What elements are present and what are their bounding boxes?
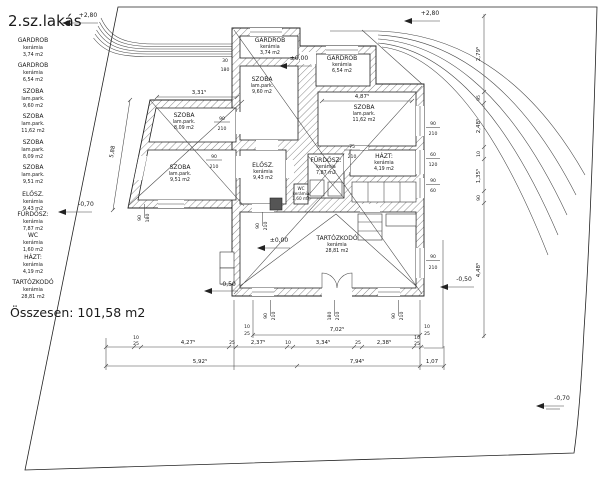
svg-text:75: 75 bbox=[349, 144, 355, 150]
svg-text:90: 90 bbox=[263, 313, 269, 319]
legend-item: WC kerámia 1,60 m2 bbox=[23, 232, 43, 253]
svg-text:kerámia: kerámia bbox=[327, 241, 346, 248]
svg-text:8,09 m2: 8,09 m2 bbox=[174, 125, 194, 131]
svg-text:90: 90 bbox=[430, 178, 436, 184]
label-szoba-951: SZOBA lam.park. 9,51 m2 bbox=[169, 164, 192, 183]
svg-text:90: 90 bbox=[391, 313, 397, 319]
svg-text:9,60 m2: 9,60 m2 bbox=[23, 103, 43, 109]
legend-item: SZOBA lam.park. 8,09 m2 bbox=[21, 139, 45, 160]
svg-text:95: 95 bbox=[476, 95, 482, 101]
dim-702: 7,02⁵ bbox=[330, 326, 344, 333]
svg-text:9,60 m2: 9,60 m2 bbox=[252, 89, 272, 95]
svg-text:GARDROB: GARDROB bbox=[18, 37, 49, 44]
svg-text:60: 60 bbox=[430, 188, 436, 194]
label-hazt: HÁZT: kerámia 4,19 m2 bbox=[374, 153, 394, 172]
svg-text:210: 210 bbox=[335, 312, 341, 321]
svg-text:25: 25 bbox=[424, 331, 430, 337]
dim-180: 180 bbox=[221, 67, 230, 73]
svg-text:kerámia: kerámia bbox=[260, 43, 279, 50]
dim-334: 3,34⁵ bbox=[316, 339, 330, 346]
svg-text:2,48⁵: 2,48⁵ bbox=[475, 119, 482, 133]
svg-text:3,74 m2: 3,74 m2 bbox=[260, 50, 280, 56]
elevation-minus070-bottom-right: -0,70 bbox=[536, 395, 570, 409]
svg-text:210: 210 bbox=[429, 265, 438, 271]
svg-text:6,54 m2: 6,54 m2 bbox=[23, 77, 43, 83]
svg-text:7,87 m2: 7,87 m2 bbox=[316, 170, 336, 176]
svg-text:SZOBA: SZOBA bbox=[170, 164, 192, 171]
svg-text:kerámia: kerámia bbox=[23, 286, 43, 293]
svg-text:kerámia: kerámia bbox=[23, 198, 43, 205]
svg-text:ELŐSZ.: ELŐSZ. bbox=[252, 162, 274, 169]
svg-text:HÁZT:: HÁZT: bbox=[24, 254, 42, 261]
svg-text:kerámia: kerámia bbox=[23, 69, 43, 76]
svg-text:10: 10 bbox=[414, 335, 420, 341]
legend-item: GARDROB kerámia 6,54 m2 bbox=[18, 62, 49, 83]
svg-text:HÁZT:: HÁZT: bbox=[375, 153, 393, 160]
svg-text:kerámia: kerámia bbox=[316, 163, 335, 170]
svg-text:8,09 m2: 8,09 m2 bbox=[23, 154, 43, 160]
svg-text:25: 25 bbox=[355, 340, 361, 346]
label-szoba-960: SZOBA lam.park. 9,60 m2 bbox=[251, 76, 274, 95]
svg-text:lam.park.: lam.park. bbox=[169, 171, 192, 177]
svg-text:10: 10 bbox=[424, 324, 430, 330]
svg-text:3,74 m2: 3,74 m2 bbox=[23, 52, 43, 58]
svg-text:lam.park.: lam.park. bbox=[21, 147, 45, 153]
svg-text:SZOBA: SZOBA bbox=[174, 112, 196, 119]
svg-text:WC: WC bbox=[28, 232, 38, 239]
svg-text:kerámia: kerámia bbox=[23, 261, 43, 268]
svg-text:120: 120 bbox=[429, 162, 438, 168]
svg-text:+2,80: +2,80 bbox=[79, 12, 98, 19]
svg-text:9,51 m2: 9,51 m2 bbox=[23, 179, 43, 185]
svg-text:25: 25 bbox=[133, 341, 139, 347]
dim-592: 5,92⁵ bbox=[193, 358, 207, 365]
svg-text:±0,00: ±0,00 bbox=[270, 237, 289, 244]
svg-text:1,60 m2: 1,60 m2 bbox=[292, 196, 310, 201]
svg-text:210: 210 bbox=[429, 131, 438, 137]
svg-text:±0,00: ±0,00 bbox=[290, 55, 309, 62]
elevation-plus280-right: +2,80 bbox=[404, 10, 440, 24]
svg-text:180: 180 bbox=[145, 214, 151, 223]
svg-text:GARDROB: GARDROB bbox=[327, 55, 358, 62]
svg-text:kerámia: kerámia bbox=[253, 168, 272, 175]
legend-item: SZOBA lam.park. 9,60 m2 bbox=[21, 88, 45, 109]
svg-text:kerámia: kerámia bbox=[332, 61, 351, 68]
svg-text:90: 90 bbox=[430, 121, 436, 127]
dim-238: 2,38⁵ bbox=[377, 339, 391, 346]
svg-text:90: 90 bbox=[219, 116, 225, 122]
svg-text:10: 10 bbox=[244, 324, 250, 330]
svg-text:90: 90 bbox=[211, 154, 217, 160]
stairs bbox=[358, 214, 382, 240]
svg-text:kerámia: kerámia bbox=[23, 44, 43, 51]
dim-wing-top: 3,31⁵ bbox=[192, 89, 206, 96]
svg-text:kerámia: kerámia bbox=[374, 159, 393, 166]
svg-text:-0,50: -0,50 bbox=[456, 276, 472, 283]
svg-text:4,19 m2: 4,19 m2 bbox=[23, 269, 43, 275]
elevation-minus070-left: -0,70 bbox=[58, 201, 94, 215]
svg-text:lam.park.: lam.park. bbox=[353, 111, 376, 117]
page-title: 2.sz.lakás bbox=[8, 12, 82, 30]
svg-text:11,62 m2: 11,62 m2 bbox=[21, 128, 44, 134]
label-elosz: ELŐSZ. kerámia 9,43 m2 bbox=[252, 162, 274, 181]
svg-text:25: 25 bbox=[244, 331, 250, 337]
svg-text:-0,50: -0,50 bbox=[220, 281, 236, 288]
dim-794: 7,94⁵ bbox=[350, 358, 364, 365]
floorplan-page: 3,31⁵ 4,87⁵ 5,88 30 180 7,02⁵ 10 25 10 2… bbox=[0, 0, 600, 478]
svg-text:lam.park.: lam.park. bbox=[21, 121, 45, 127]
svg-text:90: 90 bbox=[255, 223, 261, 229]
svg-text:6,54 m2: 6,54 m2 bbox=[332, 68, 352, 74]
svg-text:210: 210 bbox=[271, 312, 277, 321]
svg-text:FÜRDŐSZ:: FÜRDŐSZ: bbox=[310, 157, 341, 164]
legend-item: GARDROB kerámia 3,74 m2 bbox=[18, 37, 49, 58]
chimney bbox=[270, 198, 282, 210]
svg-text:lam.park.: lam.park. bbox=[251, 83, 274, 89]
svg-text:210: 210 bbox=[218, 126, 227, 132]
svg-text:4,19 m2: 4,19 m2 bbox=[374, 166, 394, 172]
svg-text:kerámia: kerámia bbox=[23, 218, 43, 225]
legend-item: ELŐSZ. kerámia 9,43 m2 bbox=[22, 191, 44, 212]
svg-text:10: 10 bbox=[133, 335, 139, 341]
svg-text:GARDROB: GARDROB bbox=[18, 62, 49, 69]
svg-text:+2,80: +2,80 bbox=[421, 10, 440, 17]
svg-text:60: 60 bbox=[430, 152, 436, 158]
svg-text:SZOBA: SZOBA bbox=[354, 104, 376, 111]
svg-text:-0,70: -0,70 bbox=[554, 395, 570, 402]
dim-427: 4,27⁵ bbox=[181, 339, 195, 346]
dim-szoba-top: 4,87⁵ bbox=[355, 93, 369, 100]
svg-text:25: 25 bbox=[229, 340, 235, 346]
dim-30: 30 bbox=[222, 58, 228, 64]
svg-text:SZOBA: SZOBA bbox=[23, 164, 45, 171]
svg-text:180: 180 bbox=[327, 312, 333, 321]
svg-text:ELŐSZ.: ELŐSZ. bbox=[22, 191, 44, 198]
bath-fixture bbox=[328, 182, 342, 196]
legend: GARDROB kerámia 3,74 m2 GARDROB kerámia … bbox=[10, 37, 145, 320]
legend-item: FÜRDŐSZ: kerámia 7,87 m2 bbox=[17, 211, 48, 232]
svg-text:11,62 m2: 11,62 m2 bbox=[353, 117, 376, 123]
svg-text:GARDROB: GARDROB bbox=[255, 37, 286, 44]
svg-text:10: 10 bbox=[285, 340, 291, 346]
svg-text:kerámia: kerámia bbox=[23, 239, 43, 246]
svg-text:210: 210 bbox=[399, 312, 405, 321]
svg-text:1,60 m2: 1,60 m2 bbox=[23, 247, 43, 253]
svg-text:lam.park.: lam.park. bbox=[173, 119, 196, 125]
svg-text:9,43 m2: 9,43 m2 bbox=[253, 175, 273, 181]
svg-text:90: 90 bbox=[430, 254, 436, 260]
svg-text:25: 25 bbox=[414, 341, 420, 347]
legend-item: TARTÓZKODÓ kerámia 28,81 m2 bbox=[11, 279, 53, 300]
legend-total: Összesen: 101,58 m2 bbox=[10, 304, 145, 320]
elevation-minus050-right: -0,50 bbox=[440, 276, 474, 290]
svg-text:1,35⁵: 1,35⁵ bbox=[475, 169, 482, 183]
legend-item: SZOBA lam.park. 11,62 m2 bbox=[21, 113, 45, 134]
svg-text:TARTÓZKODÓ: TARTÓZKODÓ bbox=[11, 279, 53, 286]
floor-plan-drawing: 3,31⁵ 4,87⁵ 5,88 30 180 7,02⁵ 10 25 10 2… bbox=[0, 0, 600, 478]
label-szoba-809: SZOBA lam.park. 8,09 m2 bbox=[173, 112, 196, 131]
label-szoba-1162: SZOBA lam.park. 11,62 m2 bbox=[353, 104, 376, 123]
svg-text:4,48⁵: 4,48⁵ bbox=[475, 263, 482, 277]
svg-text:9,51 m2: 9,51 m2 bbox=[170, 177, 190, 183]
svg-text:90: 90 bbox=[137, 215, 143, 221]
svg-text:90: 90 bbox=[476, 195, 482, 201]
svg-text:lam.park.: lam.park. bbox=[21, 172, 45, 178]
svg-text:SZOBA: SZOBA bbox=[23, 88, 45, 95]
svg-text:2,79⁵: 2,79⁵ bbox=[475, 47, 482, 61]
dim-107: 1,07 bbox=[426, 359, 439, 365]
svg-text:28,81 m2: 28,81 m2 bbox=[326, 248, 349, 254]
legend-item: SZOBA lam.park. 9,51 m2 bbox=[21, 164, 45, 185]
svg-text:28,81 m2: 28,81 m2 bbox=[21, 294, 44, 300]
dim-wing-side: 5,88 bbox=[109, 145, 117, 159]
svg-text:210: 210 bbox=[210, 164, 219, 170]
svg-text:lam.park.: lam.park. bbox=[21, 96, 45, 102]
legend-item: HÁZT: kerámia 4,19 m2 bbox=[23, 254, 43, 275]
svg-text:SZOBA: SZOBA bbox=[252, 76, 274, 83]
svg-text:FÜRDŐSZ:: FÜRDŐSZ: bbox=[17, 211, 48, 218]
svg-text:210: 210 bbox=[348, 154, 357, 160]
svg-text:210: 210 bbox=[263, 222, 269, 231]
svg-text:SZOBA: SZOBA bbox=[23, 139, 45, 146]
dim-237: 2,37⁵ bbox=[251, 339, 265, 346]
entry-steps bbox=[220, 252, 234, 268]
bath-fixture bbox=[310, 180, 324, 196]
svg-text:-0,70: -0,70 bbox=[78, 201, 94, 208]
svg-text:SZOBA: SZOBA bbox=[23, 113, 45, 120]
svg-text:10: 10 bbox=[476, 151, 482, 157]
svg-text:TARTÓZKODÓ: TARTÓZKODÓ bbox=[315, 235, 357, 242]
